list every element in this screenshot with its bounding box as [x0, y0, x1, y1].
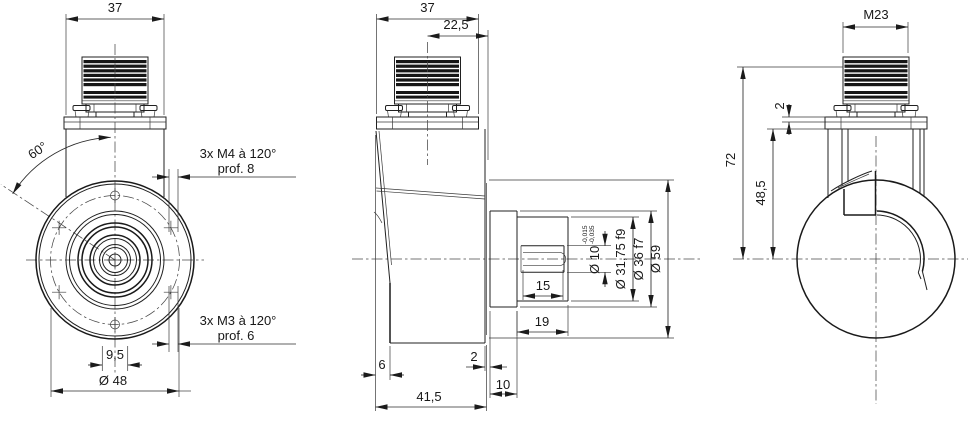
- shaft-tol-lower-label: -0,035: [589, 225, 596, 244]
- dim-shaft-dia-label: Ø 10: [587, 246, 602, 274]
- dim-flange-height-label: 48,5: [753, 180, 768, 205]
- dim-housing-length-label: 41,5: [416, 389, 441, 404]
- dim-spigot-dia-label: Ø 36 f7: [631, 238, 646, 281]
- dim-pilot-dia-label: Ø 31,75 f9: [613, 229, 628, 290]
- m3-pattern-label: 3x M3 à 120°: [200, 313, 277, 328]
- dim-total-height-label: 72: [723, 153, 738, 167]
- dim-collar-step-label: 2: [470, 349, 477, 364]
- dim-front-width-label: 37: [108, 0, 122, 15]
- dim-bolt-circle-label: Ø 48: [99, 373, 127, 388]
- dim-thread-label: M23: [863, 7, 888, 22]
- technical-drawing-canvas: 37 60° 3x M4 à 120° prof. 8 3x M3 à 120°…: [0, 0, 972, 424]
- paper-background: [0, 0, 972, 424]
- dim-body-dia-label: Ø 59: [648, 245, 663, 273]
- dim-connector-offset-label: 22,5: [443, 17, 468, 32]
- shaft-tol-upper-label: -0,015: [582, 225, 589, 244]
- dim-spigot-length-label: 10: [496, 377, 510, 392]
- m4-depth-label: prof. 8: [218, 161, 255, 176]
- dim-shaft-length-label: 19: [535, 314, 549, 329]
- m3-depth-label: prof. 6: [218, 328, 255, 343]
- dim-plate-thickness-label: 2: [772, 102, 787, 109]
- dim-side-width-label: 37: [420, 0, 434, 15]
- dim-keyway-length-label: 15: [536, 278, 550, 293]
- m4-pattern-label: 3x M4 à 120°: [200, 146, 277, 161]
- drawing-page: 37 60° 3x M4 à 120° prof. 8 3x M3 à 120°…: [0, 0, 972, 424]
- dim-rear-step-label: 6: [378, 357, 385, 372]
- dim-key-width-label: 9,5: [106, 347, 124, 362]
